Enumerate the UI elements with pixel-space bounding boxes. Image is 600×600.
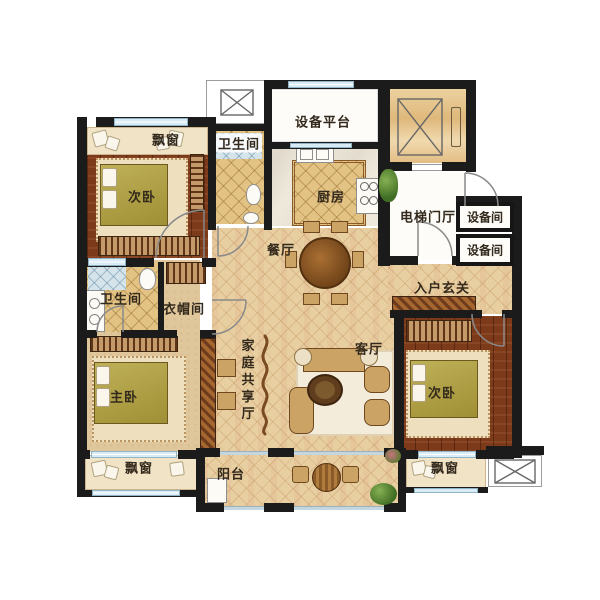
door-arc [97,306,123,332]
plant [379,169,398,202]
door-arc [472,314,504,346]
door-arc [418,222,452,256]
room-label-balcony: 阳台 [217,464,245,483]
room-label-bay-bottom-left: 飘窗 [125,458,153,477]
room-label-master-bedroom: 主卧 [110,387,138,406]
door-arc [465,173,498,206]
ac-x [495,460,535,483]
floor-plan: 飘窗 次卧 卫生间 设备平台 厨房 电梯门厅 设备间 设备间 餐厅 入户玄关 卫… [0,0,600,600]
room-label-entry-foyer: 入户玄关 [414,278,470,297]
door-arcs [97,173,504,346]
door-arc [212,300,246,334]
room-label-equipment-platform: 设备平台 [295,112,351,131]
room-label-kitchen: 厨房 [317,187,345,206]
elevator-x [398,99,442,155]
room-label-equipment-room-1: 设备间 [467,209,503,226]
door-arc [218,226,248,256]
room-label-bay-bottom-right: 飘窗 [431,458,459,477]
room-label-dining: 餐厅 [267,240,295,259]
room-label-bay-top-left: 飘窗 [152,130,180,149]
plant [385,449,401,463]
room-label-bath-left: 卫生间 [100,289,142,308]
room-label-elevator-lobby: 电梯门厅 [400,207,456,226]
x-marks [221,90,535,483]
room-label-cloakroom: 衣帽间 [163,299,205,318]
plant [370,483,397,505]
room-label-bedroom-right: 次卧 [428,383,456,402]
room-label-family-hall: 家庭共享厅 [241,338,256,422]
room-label-equipment-room-2: 设备间 [467,242,503,259]
room-label-living-room: 客厅 [355,339,383,358]
room-label-bedroom-top-left: 次卧 [128,187,156,206]
family-hall-screen [263,336,267,434]
room-label-bath-top: 卫生间 [216,134,262,153]
ac-x [221,90,253,115]
door-arc [156,210,204,258]
plan-linework [0,0,600,600]
